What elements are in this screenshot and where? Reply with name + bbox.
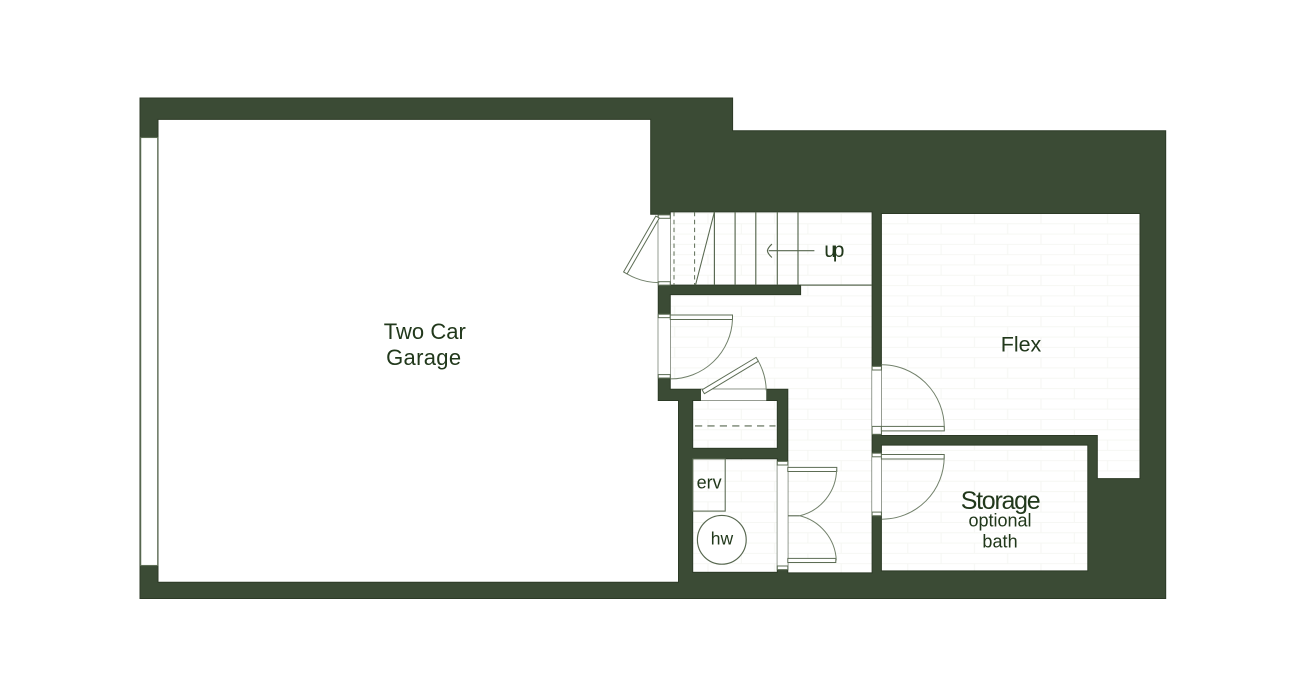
svg-text:up: up — [824, 239, 844, 262]
svg-text:bath: bath — [982, 531, 1017, 551]
svg-text:hw: hw — [711, 529, 734, 549]
svg-text:Two Car: Two Car — [384, 319, 466, 344]
svg-text:optional: optional — [969, 511, 1032, 531]
svg-text:Garage: Garage — [386, 345, 461, 370]
svg-text:Flex: Flex — [1001, 332, 1042, 356]
svg-text:erv: erv — [697, 473, 722, 493]
